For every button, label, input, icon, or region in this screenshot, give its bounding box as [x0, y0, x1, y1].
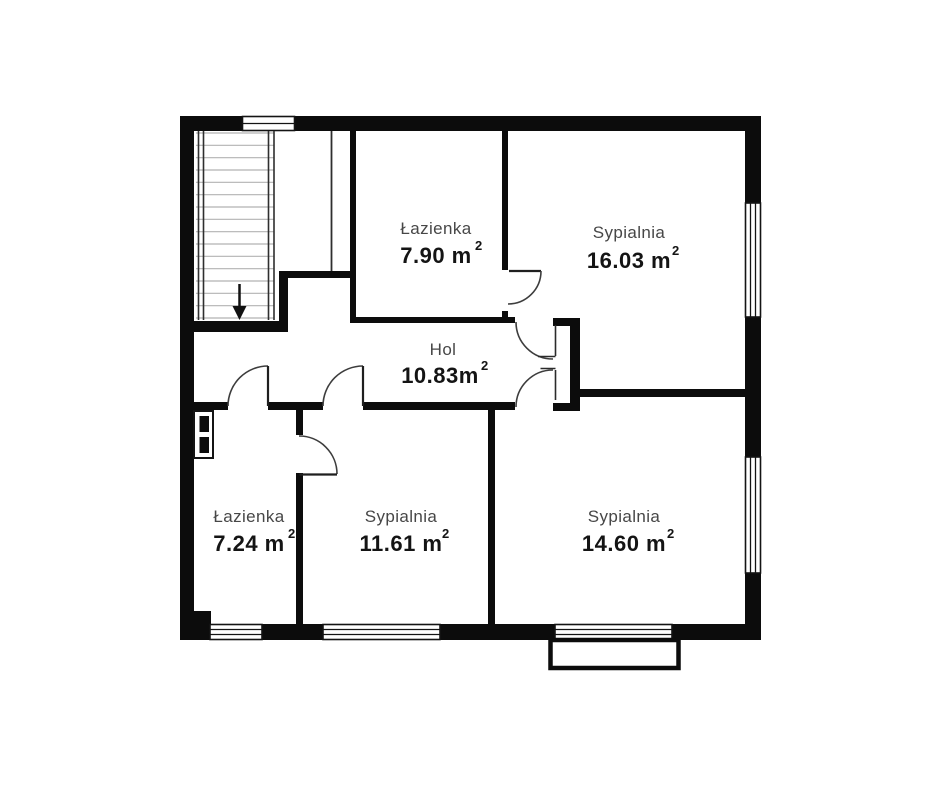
floor-plan-page: Łazienka 7.90 m 2 Sypialnia 16.03 m 2 Ho…	[0, 0, 940, 788]
room-area-sup-bathroom-lower: 2	[288, 526, 295, 541]
stair-stringers	[199, 131, 275, 320]
room-label-hall: Hol 10.83m 2	[401, 340, 488, 388]
door-hall-to-bedroom-upper	[516, 322, 556, 359]
room-name-bathroom-lower: Łazienka	[213, 507, 284, 526]
room-label-bedroom-upper-right: Sypialnia 16.03 m 2	[587, 223, 679, 273]
room-area-sup-bedroom-middle: 2	[442, 526, 449, 541]
room-area-bedroom-middle: 11.61 m	[359, 531, 442, 556]
bathroom-upper-bottom-wall	[350, 317, 515, 323]
bathroom-upper-door-jamb	[502, 311, 508, 323]
room-label-bedroom-lower-right: Sypialnia 14.60 m 2	[582, 507, 674, 556]
balcony	[551, 640, 679, 668]
room-area-bathroom-upper: 7.90 m	[400, 243, 472, 268]
window-right-bedroom-upper	[746, 203, 761, 317]
room-name-bathroom-upper: Łazienka	[400, 219, 471, 238]
floor-plan: Łazienka 7.90 m 2 Sypialnia 16.03 m 2 Ho…	[0, 0, 940, 788]
right-wall-segment-1	[745, 116, 761, 203]
window-bottom-bedroom-lower-right	[555, 625, 672, 640]
hall-bottom-wall-1	[194, 402, 228, 410]
pier-spine	[570, 318, 580, 411]
windows	[210, 117, 761, 640]
door-hall-to-bedroom-lower-right	[516, 369, 556, 408]
left-wall	[180, 116, 194, 640]
chimney-flue-2	[200, 437, 210, 453]
bottom-wall-segment-3	[440, 624, 555, 640]
bedroom-upper-bottom-wall	[579, 389, 746, 397]
window-bottom-bathroom-lower	[210, 625, 262, 640]
room-label-bathroom-upper: Łazienka 7.90 m 2	[400, 219, 482, 268]
room-area-sup-hall: 2	[481, 358, 488, 373]
chimney	[194, 411, 213, 458]
hall-bottom-wall-2	[268, 402, 323, 410]
right-wall-segment-2	[745, 317, 761, 457]
door-bathroom-lower-interior	[299, 436, 337, 475]
room-name-bedroom-upper-right: Sypialnia	[593, 223, 666, 242]
bottom-wall-segment-2	[262, 624, 323, 640]
room-area-hall: 10.83m	[401, 363, 479, 388]
room-labels: Łazienka 7.90 m 2 Sypialnia 16.03 m 2 Ho…	[213, 219, 679, 556]
bathroom-upper-left-wall	[350, 131, 356, 323]
room-area-bedroom-lower-right: 14.60 m	[582, 531, 666, 556]
stairwell-bottom-wall	[194, 321, 288, 332]
staircase	[196, 131, 332, 320]
room-area-bathroom-lower: 7.24 m	[213, 531, 285, 556]
window-bottom-bedroom-middle	[323, 625, 440, 640]
top-wall-right-segment	[295, 116, 762, 131]
room-label-bathroom-lower: Łazienka 7.24 m 2	[213, 507, 295, 556]
doors	[228, 271, 556, 475]
hall-bottom-wall-3	[363, 402, 515, 410]
window-top-stairwell	[243, 117, 295, 131]
room-label-bedroom-middle: Sypialnia 11.61 m 2	[359, 507, 449, 556]
divider-wall-lower	[296, 473, 303, 625]
stair-treads	[196, 133, 274, 318]
room-name-bedroom-middle: Sypialnia	[365, 507, 438, 526]
divider-wall-upper-stub	[296, 410, 303, 435]
door-bathroom-upper	[508, 271, 541, 304]
door-hall-to-bathroom-lower	[228, 366, 268, 406]
right-wall-segment-3	[745, 573, 761, 640]
room-area-sup-bedroom-lower-right: 2	[667, 526, 674, 541]
pier-bottom-cap	[553, 403, 580, 411]
corner-pier	[194, 611, 211, 625]
bathroom-upper-right-wall	[502, 131, 508, 270]
room-name-hall: Hol	[430, 340, 457, 359]
landing-jog-wall	[282, 271, 353, 278]
room-area-bedroom-upper-right: 16.03 m	[587, 248, 671, 273]
stairwell-corner-wall	[279, 271, 288, 326]
room-name-bedroom-lower-right: Sypialnia	[588, 507, 661, 526]
stairs-down-arrow-icon	[233, 284, 247, 320]
divider-wall-bedrooms	[488, 410, 495, 624]
pier-top-cap	[553, 318, 580, 326]
chimney-flue-1	[200, 416, 210, 432]
bottom-wall-segment-1	[180, 624, 210, 640]
window-right-bedroom-lower	[746, 457, 761, 573]
room-area-sup-bathroom-upper: 2	[475, 238, 482, 253]
room-area-sup-bedroom-upper-right: 2	[672, 243, 679, 258]
door-hall-to-bedroom-middle	[323, 366, 363, 406]
